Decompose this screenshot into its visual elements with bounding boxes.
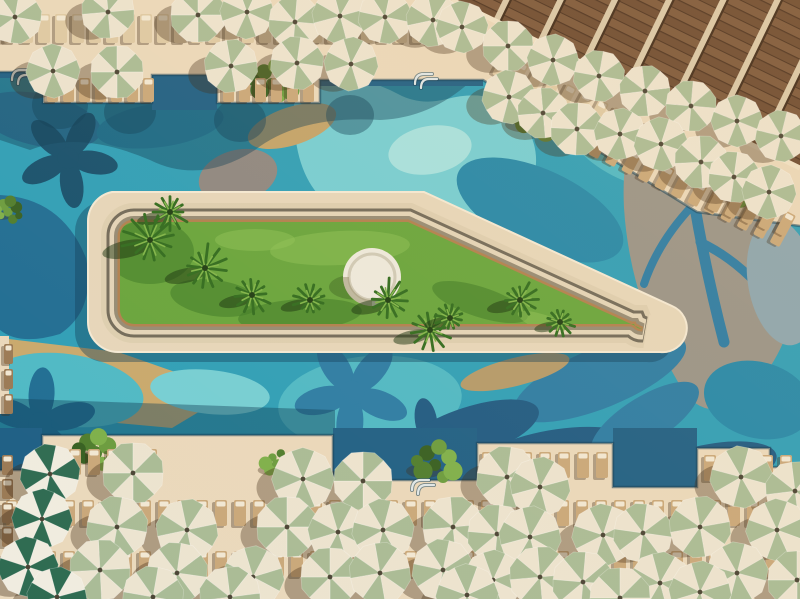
pool-scene-svg [0, 0, 800, 599]
sunlight-wash [0, 0, 800, 599]
aerial-resort-photo [0, 0, 800, 599]
